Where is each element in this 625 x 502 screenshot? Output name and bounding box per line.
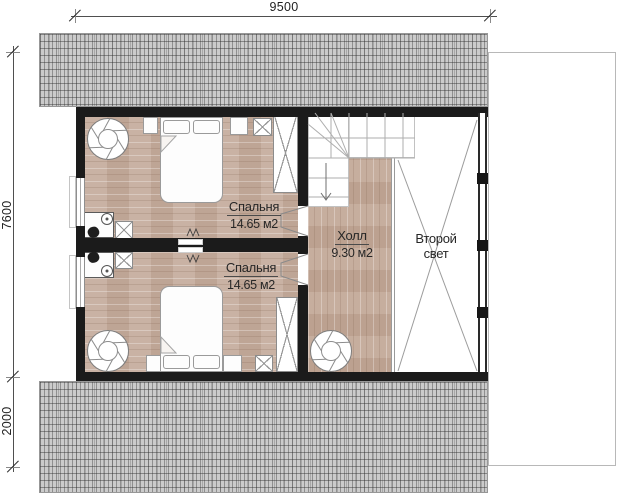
room-name: Второй	[415, 231, 456, 246]
pillow	[193, 355, 220, 369]
pillow	[163, 355, 190, 369]
room-area: 9.30 м2	[331, 246, 372, 260]
stool	[255, 355, 273, 372]
wall-hall-divider-lower	[298, 285, 308, 372]
room-label-second-light: Второй свет	[406, 231, 466, 261]
pillow	[193, 120, 220, 134]
bath-vanity	[84, 252, 114, 278]
tv-panel	[178, 247, 203, 253]
dim-width-label: 9500	[258, 0, 310, 15]
room-area: 14.65 м2	[230, 217, 278, 231]
floor-plan: Спальня 14.65 м2 Спальня 14.65 м2 Холл 9…	[0, 0, 625, 502]
stool	[115, 252, 133, 269]
terrace-outline	[488, 52, 616, 466]
pillow	[163, 120, 190, 134]
window-sill	[69, 176, 76, 228]
mullion	[477, 240, 488, 251]
wall-hall-divider-upper	[298, 113, 308, 206]
wardrobe	[276, 297, 298, 372]
tv-panel	[178, 239, 203, 245]
wall-bottom	[76, 372, 488, 381]
bath-vanity	[84, 212, 114, 238]
room-name: свет	[424, 246, 449, 261]
wall-left-upper	[76, 107, 85, 178]
staircase-left-run	[308, 113, 349, 207]
dim-height-main-label: 7600	[0, 190, 14, 240]
room-name: Спальня	[227, 199, 281, 216]
room-label-bedroom-bottom: Спальня 14.65 м2	[221, 260, 281, 293]
roof-hatch-bottom	[39, 381, 488, 493]
wardrobe	[273, 113, 298, 193]
window-left-lower	[76, 257, 85, 307]
dim-line-top	[71, 16, 497, 17]
roof-hatch-top	[39, 33, 488, 107]
nightstand	[143, 117, 158, 134]
mullion	[477, 173, 488, 184]
wall-left-lower	[76, 307, 85, 381]
window-sill	[69, 255, 76, 309]
wall-top	[76, 107, 488, 117]
room-name: Холл	[335, 228, 368, 245]
stool	[253, 118, 272, 136]
nightstand	[146, 355, 161, 372]
window-left-upper	[76, 178, 85, 226]
hall-void-railing	[391, 158, 395, 373]
mullion	[477, 307, 488, 318]
room-area: 14.65 м2	[227, 278, 275, 292]
room-label-bedroom-top: Спальня 14.65 м2	[224, 199, 284, 232]
room-name: Спальня	[224, 260, 278, 277]
nightstand	[230, 117, 248, 135]
stool	[115, 221, 133, 239]
wall-hall-divider-stub	[298, 236, 308, 254]
nightstand	[223, 355, 242, 372]
room-label-hall: Холл 9.30 м2	[322, 228, 382, 261]
dim-height-lower-label: 2000	[0, 396, 14, 446]
